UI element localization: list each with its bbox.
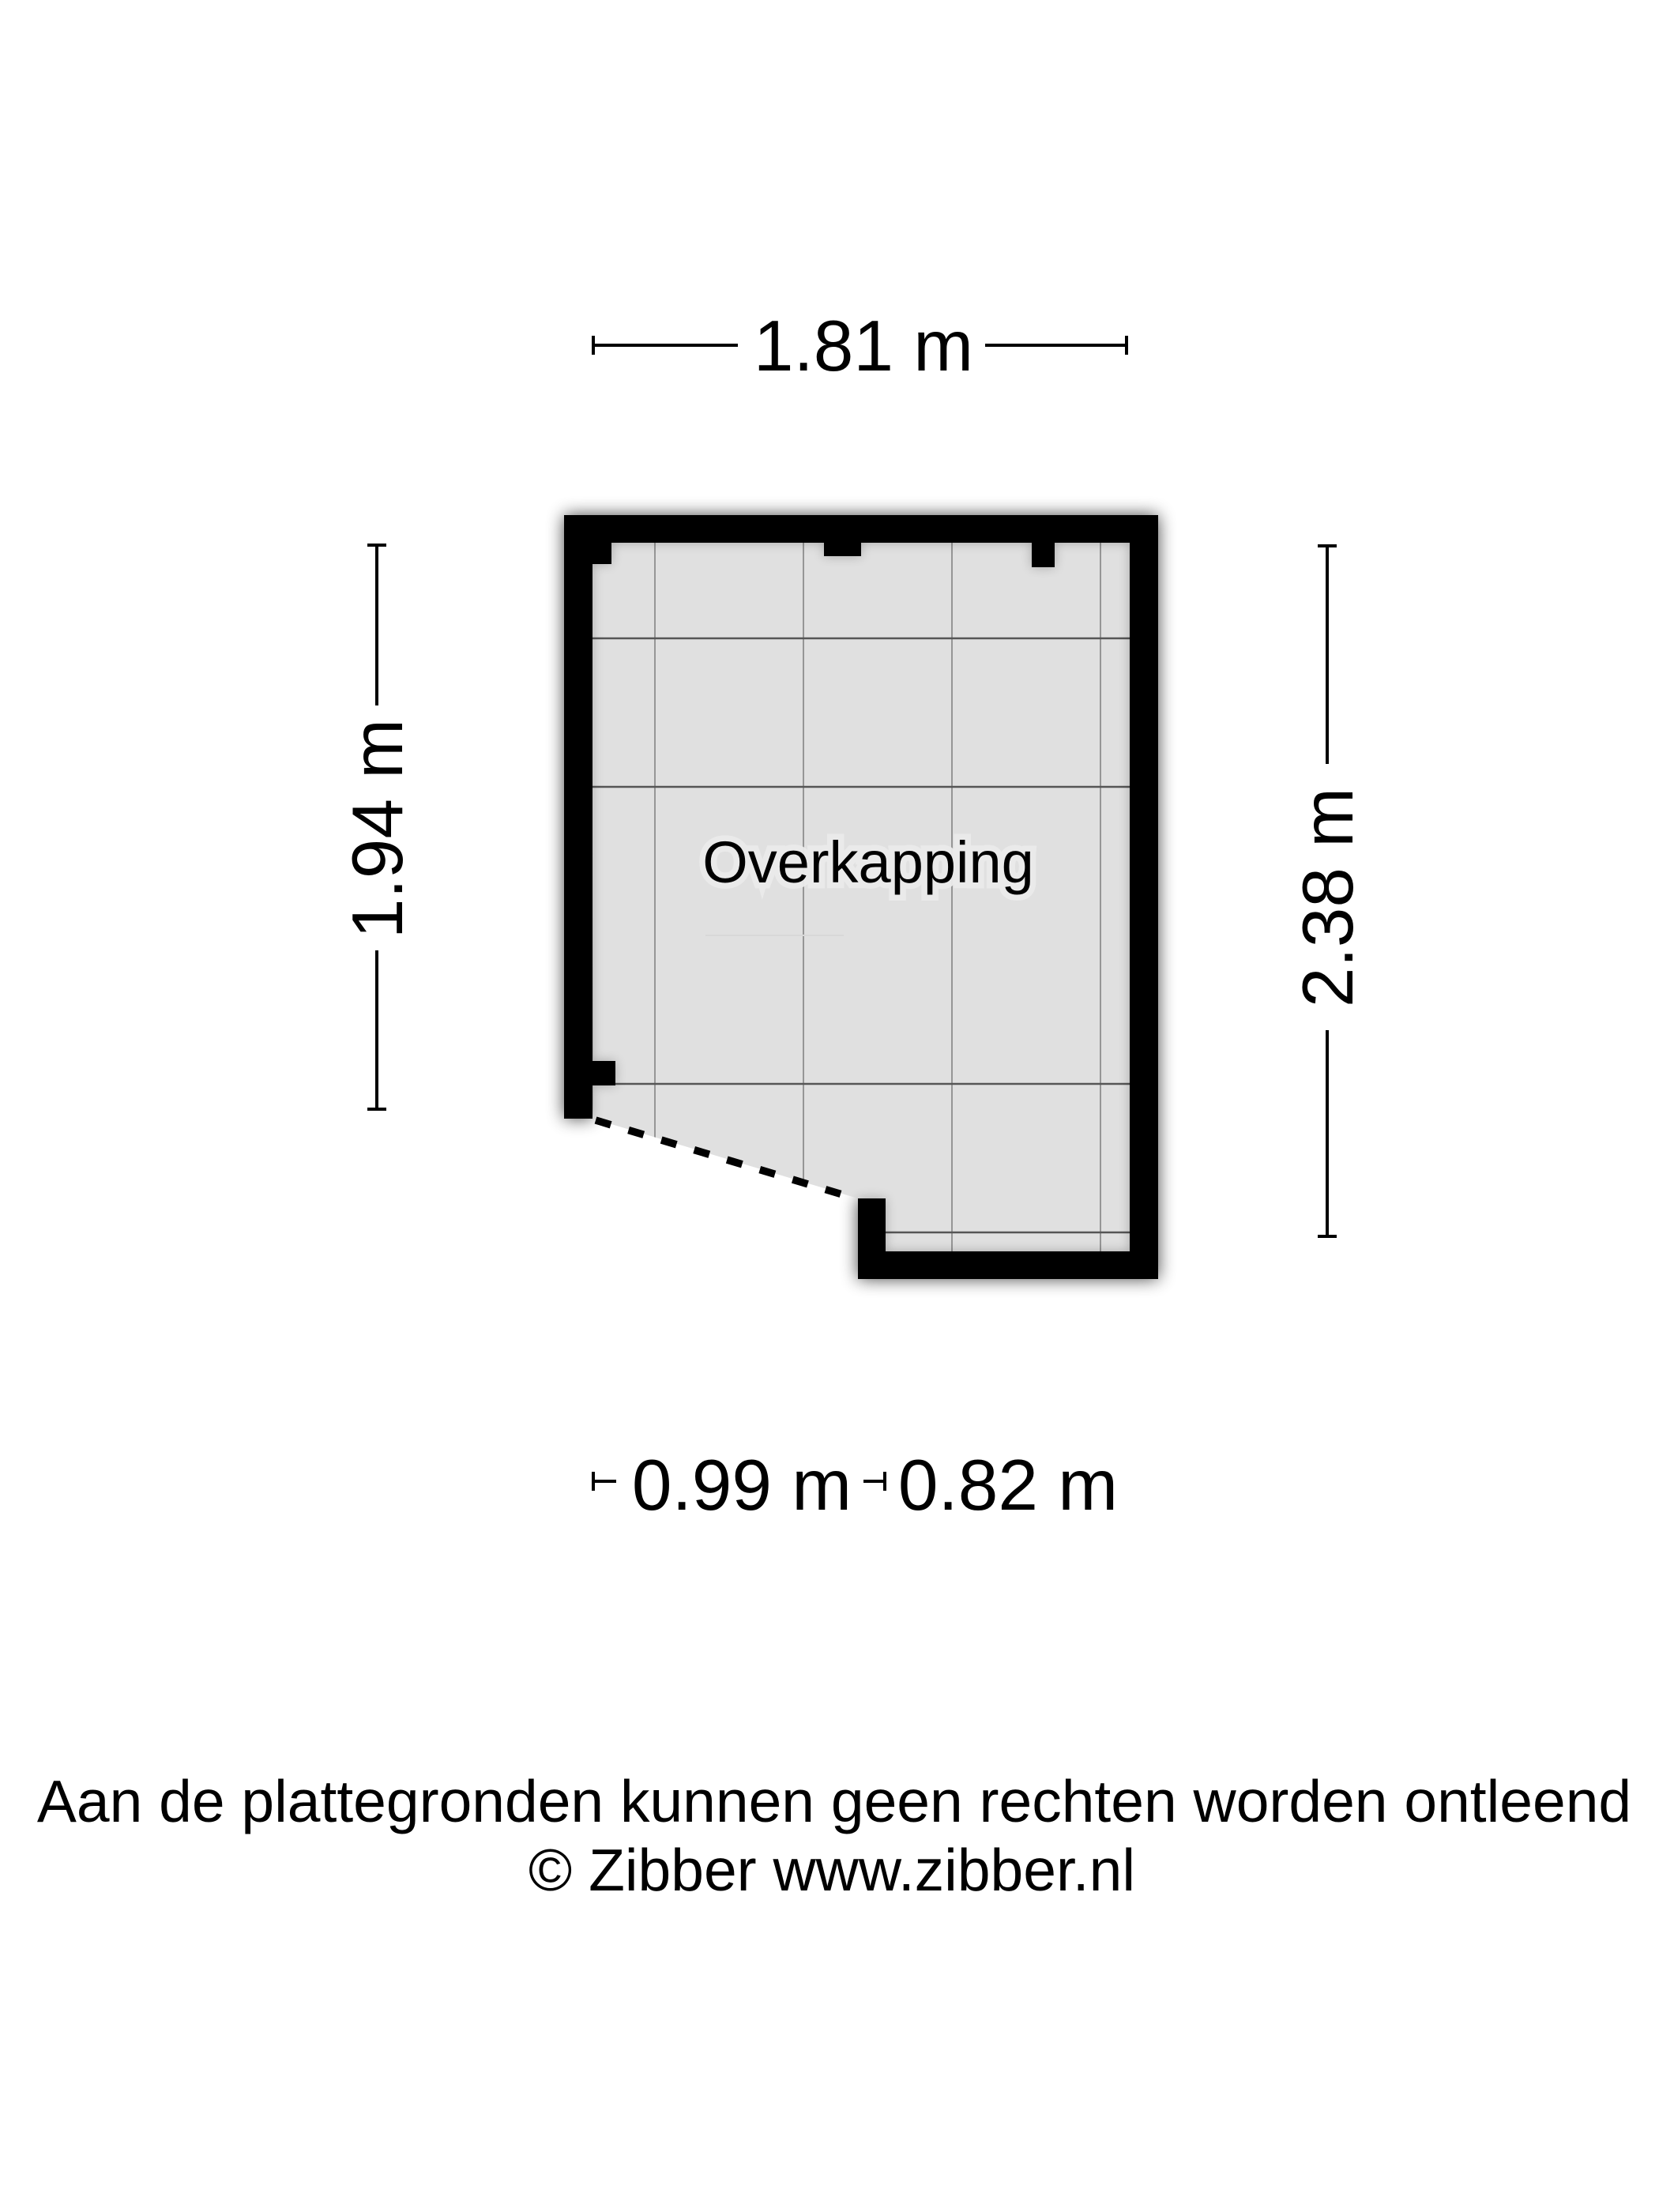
svg-text:2.38 m: 2.38 m [1288,788,1368,1007]
svg-text:1.94 m: 1.94 m [338,719,418,939]
svg-text:© Zibber www.zibber.nl: © Zibber www.zibber.nl [529,1837,1135,1903]
svg-text:1.81 m: 1.81 m [754,307,973,386]
svg-text:0.82 m: 0.82 m [898,1446,1118,1525]
svg-text:Aan de plattegronden kunnen ge: Aan de plattegronden kunnen geen rechten… [37,1768,1631,1834]
svg-text:0.99 m: 0.99 m [632,1446,852,1525]
svg-text:Overkapping: Overkapping [702,829,1034,895]
